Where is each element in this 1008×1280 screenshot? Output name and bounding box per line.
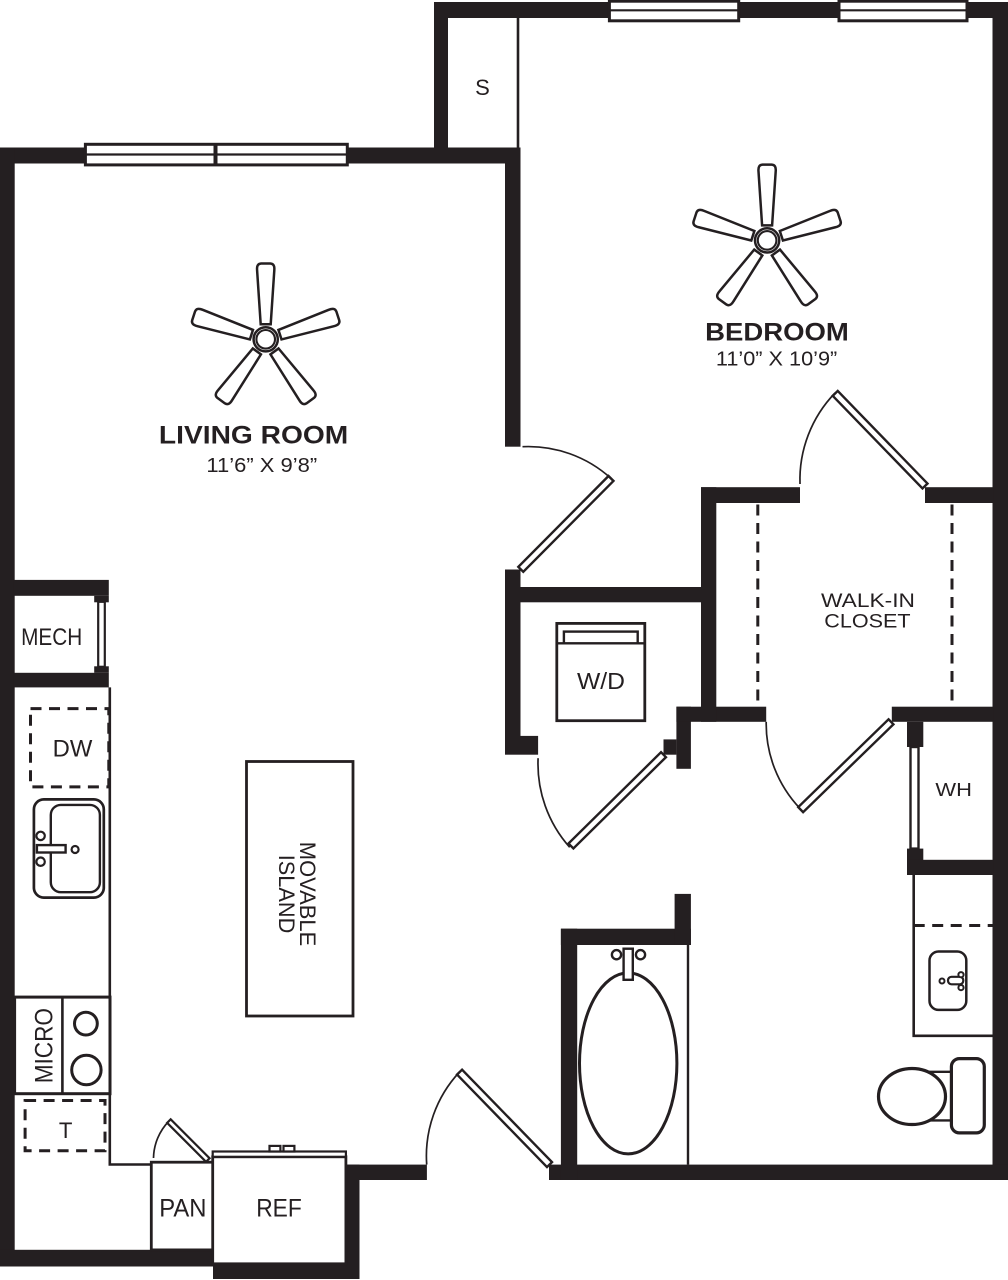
svg-text:REF: REF bbox=[256, 1195, 302, 1222]
svg-text:WALK-IN: WALK-IN bbox=[821, 590, 915, 612]
svg-text:DW: DW bbox=[53, 736, 93, 763]
svg-text:11’0” X 10’9”: 11’0” X 10’9” bbox=[716, 348, 837, 370]
svg-text:MECH: MECH bbox=[21, 624, 82, 651]
svg-text:BEDROOM: BEDROOM bbox=[705, 318, 849, 346]
svg-text:T: T bbox=[59, 1118, 73, 1143]
svg-text:LIVING ROOM: LIVING ROOM bbox=[159, 422, 348, 450]
svg-text:CLOSET: CLOSET bbox=[824, 611, 910, 633]
svg-text:ISLAND: ISLAND bbox=[274, 855, 299, 934]
svg-text:WH: WH bbox=[935, 779, 972, 800]
svg-text:S: S bbox=[475, 75, 490, 100]
svg-text:PAN: PAN bbox=[159, 1195, 206, 1222]
svg-text:MICRO: MICRO bbox=[31, 1008, 59, 1083]
svg-text:11’6” X 9’8”: 11’6” X 9’8” bbox=[206, 455, 317, 477]
svg-text:W/D: W/D bbox=[577, 668, 625, 694]
